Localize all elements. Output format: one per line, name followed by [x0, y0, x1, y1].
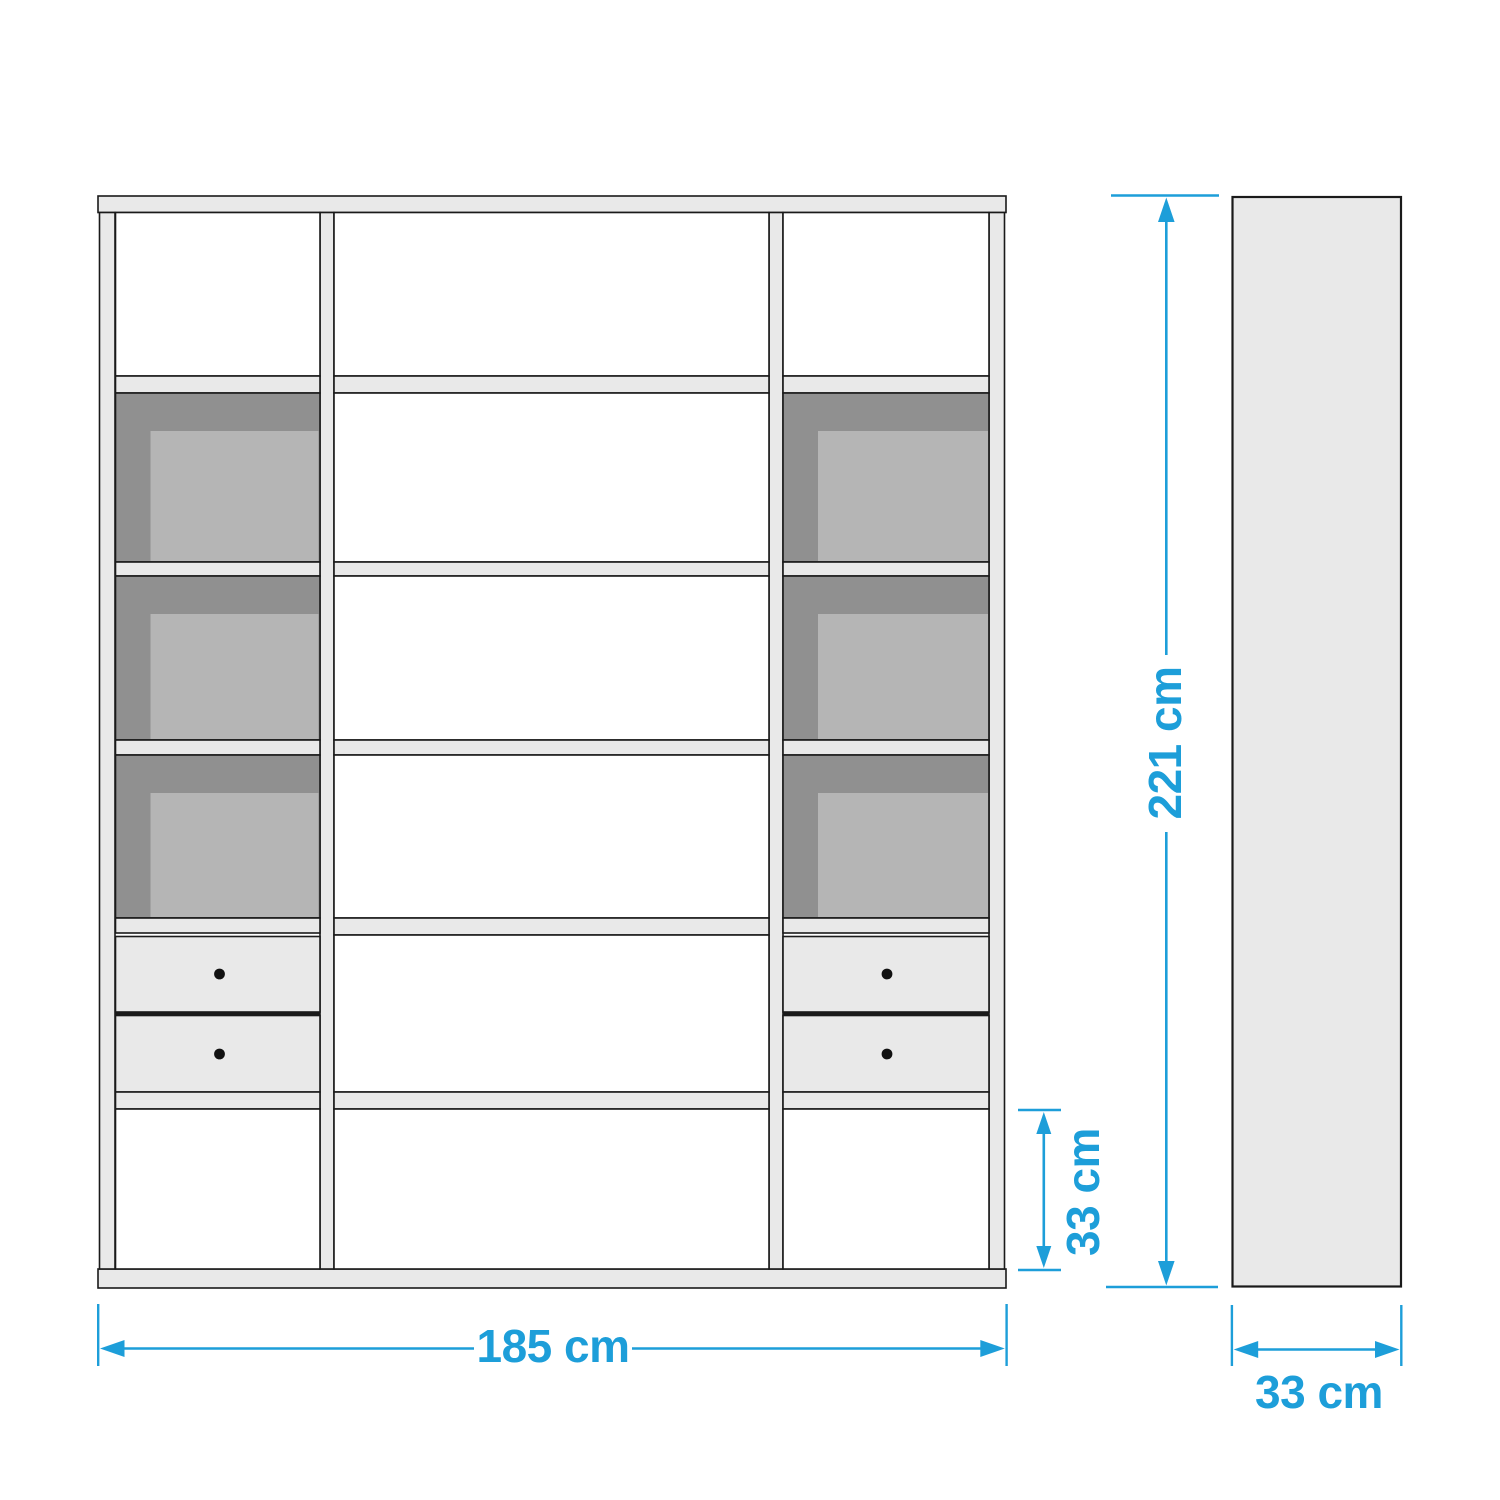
svg-text:33 cm: 33 cm	[1057, 1128, 1109, 1256]
svg-text:221 cm: 221 cm	[1139, 666, 1191, 819]
svg-text:33 cm: 33 cm	[1255, 1366, 1383, 1418]
svg-text:185 cm: 185 cm	[476, 1320, 629, 1372]
